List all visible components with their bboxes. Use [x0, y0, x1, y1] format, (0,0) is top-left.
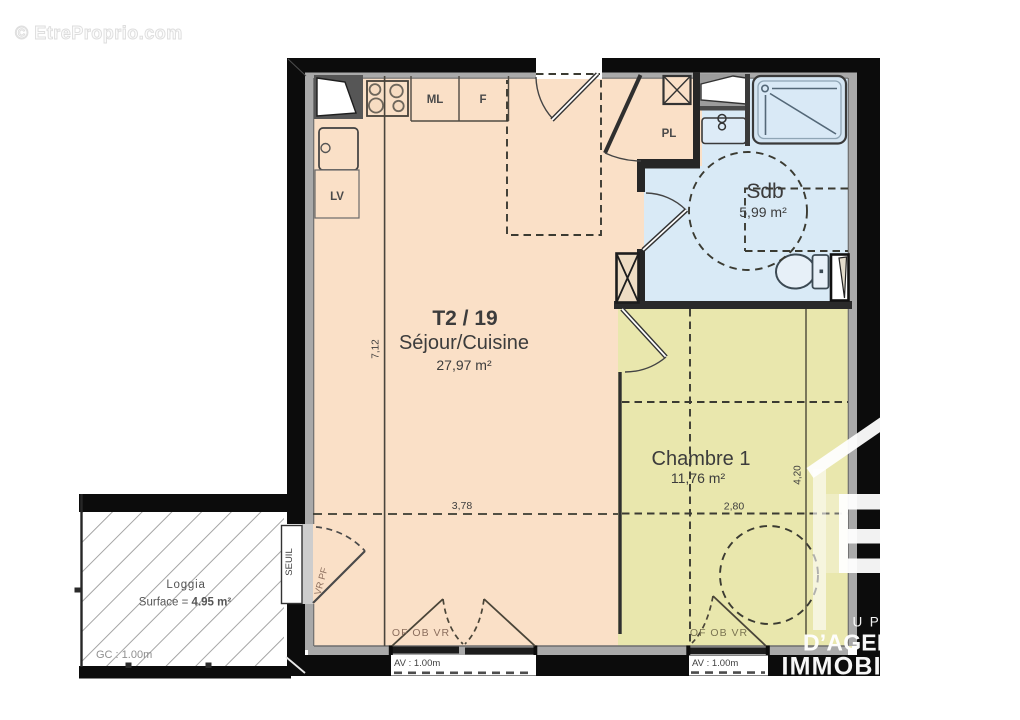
svg-text:Sdb: Sdb [746, 180, 783, 203]
svg-text:2,80: 2,80 [724, 501, 745, 513]
svg-text:11,76 m²: 11,76 m² [671, 470, 726, 486]
svg-text:Séjour/Cuisine: Séjour/Cuisine [399, 332, 529, 354]
svg-text:Loggia: Loggia [166, 579, 205, 591]
svg-text:7,12: 7,12 [371, 339, 382, 359]
svg-text:4,20: 4,20 [793, 465, 804, 485]
svg-text:ML: ML [427, 94, 444, 106]
svg-text:F: F [479, 94, 486, 106]
svg-text:AV : 1.00m: AV : 1.00m [692, 658, 738, 669]
svg-text:GC : 1.00m: GC : 1.00m [96, 649, 152, 661]
svg-text:OF OB VR: OF OB VR [392, 627, 450, 639]
svg-text:LV: LV [330, 191, 344, 203]
svg-text:OF OB VR: OF OB VR [690, 627, 748, 639]
svg-text:3,78: 3,78 [452, 500, 473, 512]
svg-text:27,97 m²: 27,97 m² [436, 357, 492, 373]
svg-text:© EtreProprio.com: © EtreProprio.com [15, 23, 183, 43]
svg-text:Surface = 4.95 m²: Surface = 4.95 m² [139, 597, 232, 609]
svg-text:PL: PL [662, 128, 677, 140]
svg-text:IMMOBI: IMMOBI [782, 653, 882, 681]
svg-text:T2 / 19: T2 / 19 [432, 307, 497, 330]
svg-text:AV : 1.00m: AV : 1.00m [394, 658, 440, 669]
svg-text:UP: UP [853, 615, 887, 630]
svg-text:5,99 m²: 5,99 m² [739, 204, 787, 220]
svg-text:SEUIL: SEUIL [284, 548, 295, 575]
svg-text:Chambre 1: Chambre 1 [652, 448, 751, 470]
